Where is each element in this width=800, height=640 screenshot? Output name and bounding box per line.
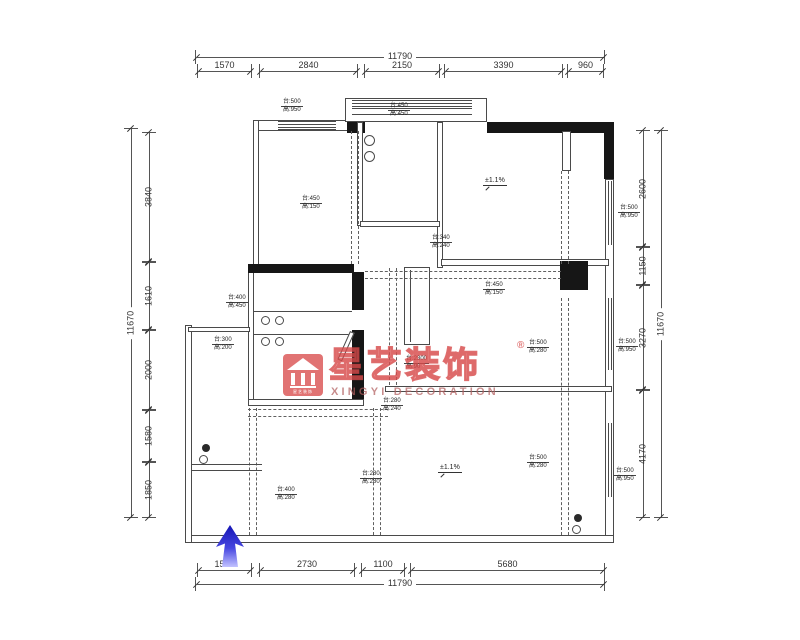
watermark: 星艺装饰 星艺装饰 ® XINGYI DECORATION [281, 346, 541, 408]
stove-burner-icon [275, 337, 284, 346]
dim-left-seg: 1580 [142, 410, 156, 462]
column-icon [291, 373, 295, 385]
wall [188, 327, 250, 332]
beam-annotation: 台:280高:280 [360, 471, 382, 486]
floor-plan-sheet: 11790 1570 2840 2150 3390 960 1570 2730 … [0, 0, 800, 640]
logo-base [290, 386, 316, 388]
wall-solid [352, 272, 364, 310]
window [352, 100, 472, 109]
wall [360, 221, 440, 227]
level-mark: ±1.1% [438, 464, 462, 473]
level-mark: ±1.1% [483, 177, 507, 186]
stove-burner-icon [275, 316, 284, 325]
beam-annotation: 台:340高:240 [430, 235, 452, 250]
stove-burner-icon [261, 337, 270, 346]
logo-caption: 星艺装饰 [283, 389, 323, 395]
wall [185, 325, 192, 543]
beam-dashed-line [365, 271, 561, 279]
dim-left-seg: 1850 [142, 462, 156, 518]
wall [188, 535, 614, 543]
window-annotation: 台:450高:450 [388, 103, 410, 118]
dim-left-seg: 1610 [142, 262, 156, 330]
drain-icon [574, 514, 582, 522]
wall [248, 268, 254, 405]
dim-top-seg: 2840 [259, 64, 358, 78]
beam-annotation: 台:450高:150 [300, 196, 322, 211]
beam-dashed-line [351, 131, 359, 264]
dim-top-seg: 960 [567, 64, 604, 78]
wall-solid [487, 122, 613, 133]
dim-top-seg: 3390 [444, 64, 563, 78]
shelf-line [192, 464, 262, 465]
dim-right-seg: 2600 [636, 130, 650, 247]
dim-top-seg: 2150 [364, 64, 440, 78]
dim-bottom-total: 11790 [195, 577, 605, 591]
wall-solid [604, 122, 614, 179]
pipe-icon [364, 135, 375, 146]
wall [562, 131, 571, 171]
cabinet-line [410, 270, 411, 342]
drain-icon [199, 455, 208, 464]
beam-dashed-line [248, 409, 388, 417]
dim-top-seg: 1570 [197, 64, 252, 78]
roof-icon [287, 358, 319, 370]
wall [253, 120, 259, 270]
window-sill-line [352, 114, 472, 115]
entrance-arrow-icon [212, 523, 248, 569]
dim-bottom-seg: 5680 [410, 563, 605, 577]
drain-icon [202, 444, 210, 452]
wall-solid [248, 264, 354, 273]
stove-burner-icon [261, 316, 270, 325]
shelf-line [192, 470, 262, 471]
dim-left-seg: 2000 [142, 330, 156, 410]
window-annotation: 台:300高:200 [212, 337, 234, 352]
dim-right-seg: 4170 [636, 390, 650, 518]
dim-right-seg: 1150 [636, 247, 650, 285]
window [605, 298, 614, 370]
dim-right-total: 11670 [654, 130, 668, 518]
beam-annotation: 台:400高:280 [275, 487, 297, 502]
dim-right-seg: 3270 [636, 285, 650, 390]
dim-bottom-seg: 2730 [259, 563, 355, 577]
counter-line [253, 311, 352, 312]
xingyi-logo-icon: 星艺装饰 [283, 354, 323, 396]
dim-left-total: 11670 [124, 128, 138, 518]
beam-annotation: 台:500高:280 [527, 455, 549, 470]
drain-icon [572, 525, 581, 534]
dim-bottom-seg: 1100 [361, 563, 405, 577]
brand-text: 星艺装饰 [329, 346, 481, 386]
window-annotation: 台:500高:950 [616, 339, 638, 354]
beam-dashed-line [249, 408, 257, 535]
counter-line [253, 334, 352, 335]
window [278, 121, 336, 130]
window-annotation: 台:400高:450 [226, 295, 248, 310]
column-icon [311, 373, 315, 385]
wall-solid [560, 261, 588, 290]
window-annotation: 台:500高:950 [614, 468, 636, 483]
brand-subtitle: XINGYI DECORATION [331, 386, 499, 398]
dim-left-seg: 3840 [142, 132, 156, 262]
beam-dashed-line [561, 298, 569, 535]
beam-dashed-line [561, 171, 569, 264]
column-icon [301, 373, 305, 385]
window-annotation: 台:500高:950 [618, 205, 640, 220]
beam-annotation: 台:450高:150 [483, 282, 505, 297]
pipe-icon [364, 151, 375, 162]
window [605, 423, 614, 497]
window-annotation: 台:500高:950 [281, 99, 303, 114]
registered-mark: ® [517, 340, 524, 351]
window [605, 181, 614, 245]
